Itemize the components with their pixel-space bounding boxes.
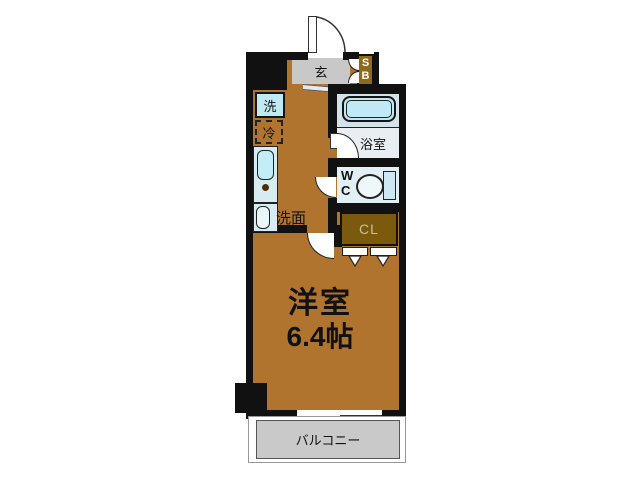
wc-label-w: W <box>341 169 353 183</box>
room-label: 洋室 6.4帖 <box>250 287 390 353</box>
bathtub-inner-line <box>346 100 392 118</box>
washing-machine: 洗 <box>255 92 285 118</box>
pillar <box>235 383 267 413</box>
bathroom-label: 浴室 <box>360 134 386 153</box>
bathtub <box>342 96 396 122</box>
wall-wc-bottom <box>337 203 406 212</box>
wall-mid-between <box>328 158 337 177</box>
toilet-bowl <box>356 174 384 199</box>
building-notch <box>379 38 409 84</box>
shoe-box: S B <box>357 54 374 86</box>
stove-burner <box>262 184 269 191</box>
shoe-box-label-b: B <box>362 70 370 83</box>
refrigerator: 冷 <box>255 120 283 144</box>
closet-door-panel-left <box>342 247 368 256</box>
room-name: 洋室 <box>250 287 390 321</box>
closet-label: CL <box>359 221 379 237</box>
room-size: 6.4帖 <box>250 321 390 353</box>
washing-machine-label: 洗 <box>263 96 276 115</box>
wall-right <box>399 88 406 416</box>
closet: CL <box>340 212 398 246</box>
kitchen-sink <box>257 150 274 180</box>
wall-bath-bottom <box>337 158 406 167</box>
entrance-door-leaf <box>308 16 317 53</box>
balcony-label: バルコニー <box>296 430 361 449</box>
shoe-box-label-s: S <box>362 57 369 70</box>
wc-label-c: C <box>341 184 350 198</box>
wall-mid-upper <box>328 94 337 138</box>
entrance-area: 玄 <box>292 58 350 84</box>
entrance-label: 玄 <box>314 62 327 81</box>
closet-door-panel-right <box>370 247 397 256</box>
balcony-area: バルコニー <box>256 420 400 459</box>
refrigerator-label: 冷 <box>262 123 275 142</box>
washstand-label: 洗面 <box>276 207 306 228</box>
toilet-tank <box>383 171 396 200</box>
entrance-door-arc <box>317 17 345 52</box>
floor-plan: 玄 浴室 CL S B 洗 冷 洗面 <box>0 0 640 480</box>
washstand-basin <box>256 206 270 229</box>
